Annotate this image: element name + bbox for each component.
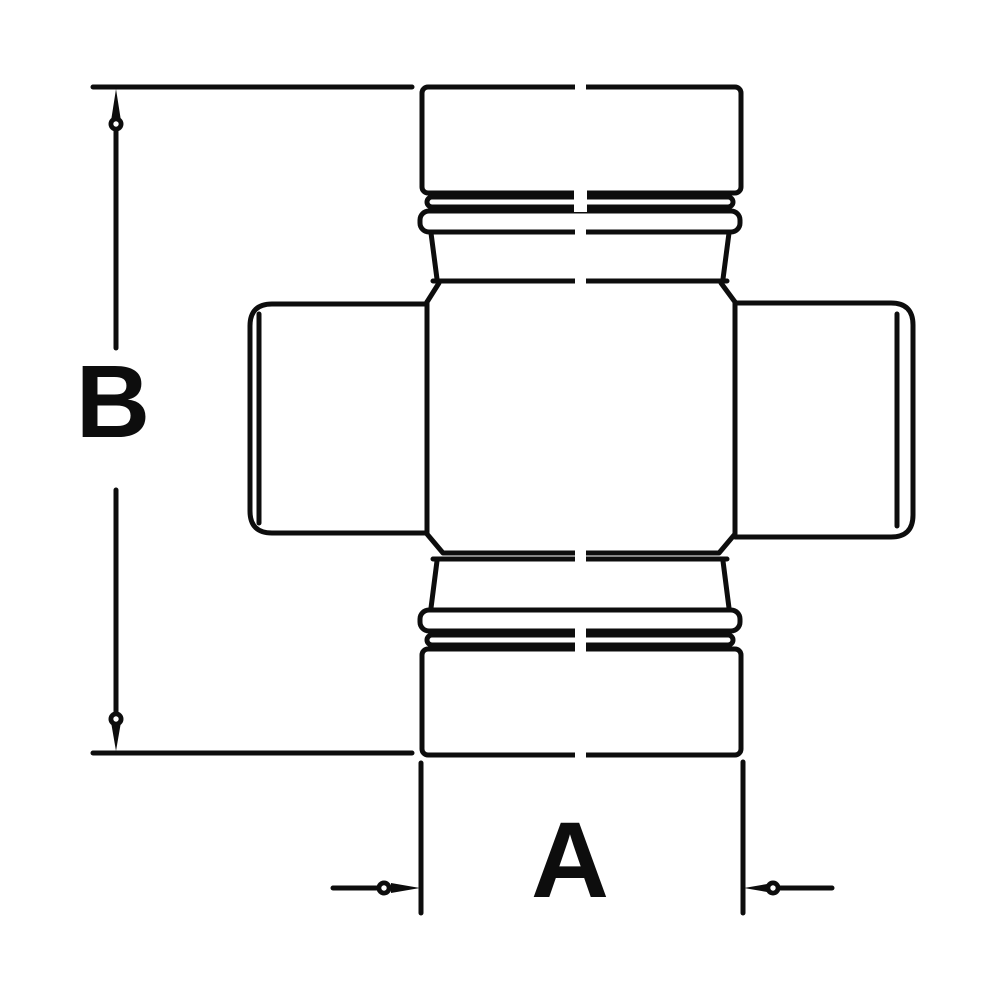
- line-gap: [575, 276, 586, 285]
- line-gap: [575, 82, 586, 92]
- right-bearing-cup: [735, 303, 913, 537]
- top-collar-and-chamfers: [427, 233, 735, 302]
- bottom-collar-and-chamfers: [431, 559, 729, 608]
- dim-a-label: A: [531, 799, 609, 920]
- ujoint-part: [250, 87, 913, 755]
- dimension-a: A: [333, 762, 832, 920]
- dim-a-arrow-left-hole: [770, 885, 775, 890]
- line-gap: [575, 626, 586, 654]
- drawing-canvas: B A: [0, 0, 1000, 1000]
- bottom-bearing-cup: [420, 559, 741, 755]
- right-cup-outline: [735, 303, 913, 537]
- left-bearing-cup: [250, 304, 427, 533]
- dim-b-arrow-down-hole: [113, 716, 118, 721]
- dim-a-arrow-right-hole: [381, 885, 386, 890]
- left-cup-outline: [250, 304, 427, 533]
- line-gap: [575, 749, 586, 759]
- top-bearing-cap: [422, 87, 741, 193]
- bottom-bearing-cap: [422, 649, 741, 755]
- dim-b-label: B: [76, 344, 150, 459]
- line-gap: [575, 228, 586, 237]
- line-gap: [574, 188, 587, 212]
- technical-drawing-svg: B A: [0, 0, 1000, 1000]
- line-gap: [575, 548, 586, 562]
- center-block: [427, 302, 735, 553]
- dim-b-arrow-up-hole: [113, 121, 118, 126]
